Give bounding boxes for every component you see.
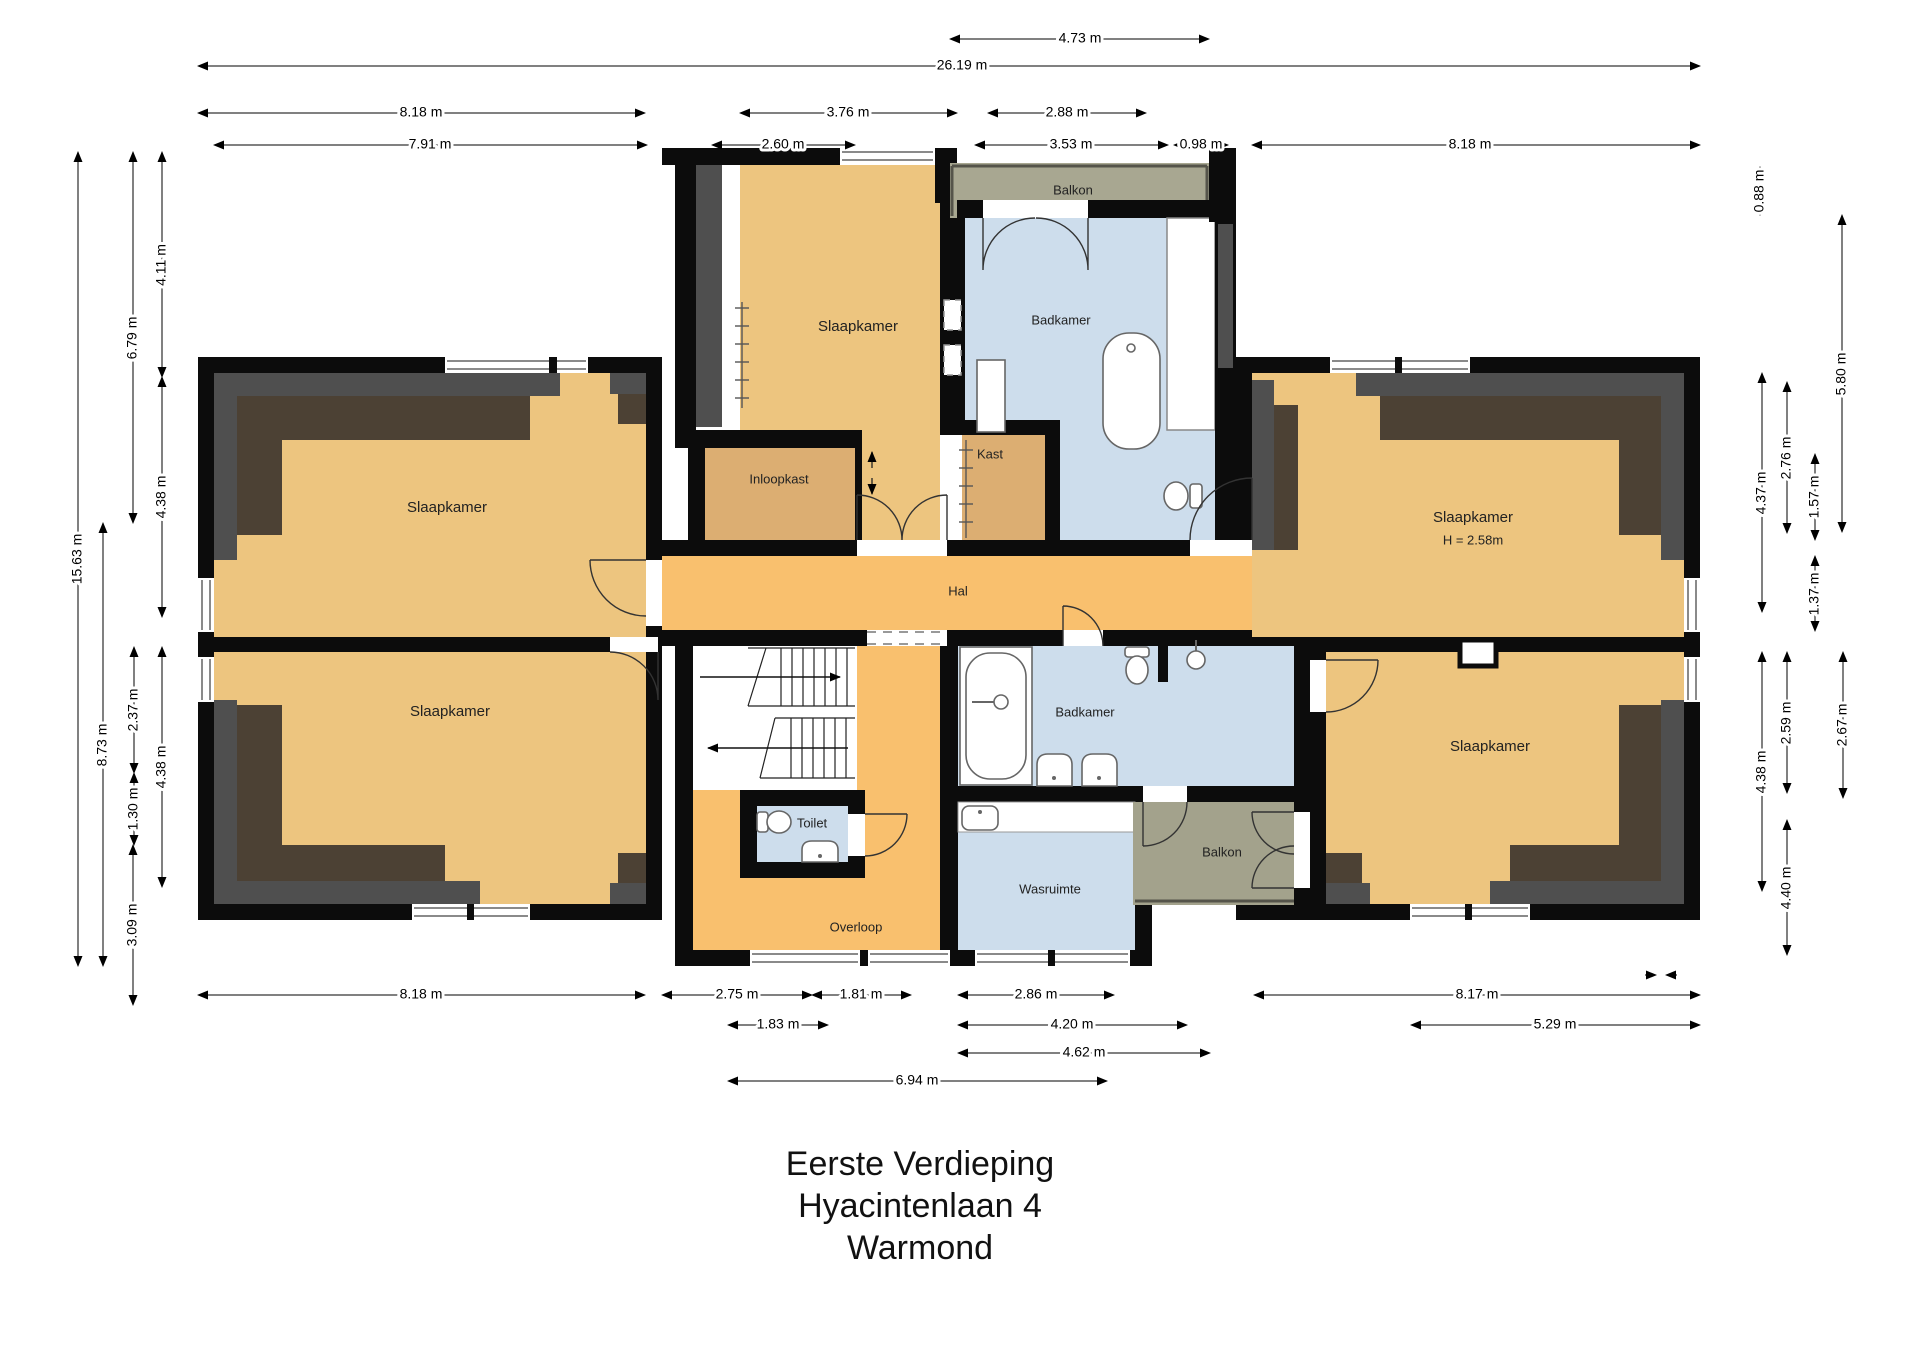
dim-label: 2.75 m bbox=[716, 986, 759, 1002]
dim-label: 0.98 m bbox=[1180, 136, 1223, 152]
dim-label: 2.88 m bbox=[1046, 104, 1089, 120]
dim-label: 7.91 m bbox=[409, 136, 452, 152]
dim-label: 8.18 m bbox=[400, 986, 443, 1002]
room-label-overloop: Overloop bbox=[830, 919, 883, 934]
dim-label: 8.18 m bbox=[400, 104, 443, 120]
plan-title: Eerste Verdieping Hyacintenlaan 4 Warmon… bbox=[786, 1145, 1054, 1267]
window bbox=[198, 657, 214, 702]
dim-label: 5.29 m bbox=[1534, 1016, 1577, 1032]
floor-plan: 4.73 m 26.19 m 8.18 m 3.76 m 2.88 m 7.91… bbox=[0, 0, 1920, 1358]
center-top-section bbox=[662, 148, 1236, 556]
dim-label: 1.30 m bbox=[125, 788, 141, 831]
dim-label: 8.18 m bbox=[1449, 136, 1492, 152]
dim-label: 4.38 m bbox=[1753, 751, 1769, 794]
title-city: Warmond bbox=[847, 1229, 993, 1267]
dim-label: 4.38 m bbox=[153, 476, 169, 519]
room-label-ceiling-height: H = 2.58m bbox=[1443, 532, 1503, 547]
dim-label: 4.20 m bbox=[1051, 1016, 1094, 1032]
room-label-balkon-bottom: Balkon bbox=[1202, 844, 1242, 859]
dim-label: 2.37 m bbox=[125, 689, 141, 732]
window bbox=[198, 578, 214, 632]
sink-icon bbox=[802, 841, 838, 862]
window bbox=[840, 148, 935, 165]
dim-label: 6.79 m bbox=[124, 317, 140, 360]
bathtub-freestanding-icon bbox=[1103, 333, 1160, 449]
dim-label: 1.81 m bbox=[840, 986, 883, 1002]
title-street: Hyacintenlaan 4 bbox=[798, 1187, 1042, 1225]
toilet-icon bbox=[1125, 647, 1149, 684]
dim-label: 4.62 m bbox=[1063, 1044, 1106, 1060]
window bbox=[1330, 357, 1470, 373]
room-label-slaapkamer-mid-top: Slaapkamer bbox=[818, 318, 898, 335]
dim-label: 4.38 m bbox=[153, 746, 169, 789]
room-label-slaapkamer-left-top: Slaapkamer bbox=[407, 499, 487, 516]
dim-label: 8.73 m bbox=[94, 724, 110, 767]
dim-label: 4.73 m bbox=[1059, 30, 1102, 46]
toilet-icon bbox=[1164, 482, 1202, 510]
window bbox=[412, 904, 530, 920]
window bbox=[445, 357, 588, 373]
sink-icon bbox=[1037, 754, 1072, 786]
sink-icon bbox=[962, 806, 998, 830]
dim-label: 2.67 m bbox=[1834, 704, 1850, 747]
dim-label: 4.40 m bbox=[1778, 867, 1794, 910]
dim-label: 2.86 m bbox=[1015, 986, 1058, 1002]
wall-stub bbox=[1158, 646, 1168, 682]
window bbox=[1410, 904, 1530, 920]
room-label-badkamer-bottom: Badkamer bbox=[1055, 704, 1115, 719]
bathtub-builtin-icon bbox=[960, 647, 1032, 785]
dim-label: 0.88 m bbox=[1751, 170, 1767, 213]
dim-label: 1.37 m bbox=[1806, 573, 1822, 616]
dim-label: 4.37 m bbox=[1753, 472, 1769, 515]
dim-label: 1.83 m bbox=[757, 1016, 800, 1032]
toilet-icon bbox=[757, 811, 791, 833]
room-kast bbox=[962, 435, 1045, 540]
room-label-inloopkast: Inloopkast bbox=[749, 471, 809, 486]
dim-label: 3.09 m bbox=[124, 904, 140, 947]
dim-label: 5.80 m bbox=[1833, 353, 1849, 396]
dim-label: 8.17 m bbox=[1456, 986, 1499, 1002]
window bbox=[750, 950, 860, 966]
window bbox=[1684, 657, 1700, 702]
window bbox=[868, 950, 950, 966]
title-level: Eerste Verdieping bbox=[786, 1145, 1054, 1183]
window bbox=[975, 950, 1130, 966]
dim-label: 3.76 m bbox=[827, 104, 870, 120]
room-label-kast: Kast bbox=[977, 446, 1003, 461]
vanity-icon bbox=[977, 360, 1005, 432]
dim-label: 2.60 m bbox=[762, 136, 805, 152]
dim-label: 1.57 m bbox=[1806, 476, 1822, 519]
dim-label: 2.59 m bbox=[1778, 702, 1794, 745]
dim-label: 6.94 m bbox=[896, 1072, 939, 1088]
window bbox=[1684, 578, 1700, 632]
dim-label: 4.11 m bbox=[153, 244, 169, 286]
left-wing bbox=[198, 357, 662, 920]
shower-area bbox=[1167, 218, 1215, 430]
room-label-toilet: Toilet bbox=[797, 815, 828, 830]
room-label-slaapkamer-right-top: Slaapkamer bbox=[1433, 509, 1513, 526]
staircase bbox=[693, 646, 857, 790]
dim-label: 26.19 m bbox=[937, 57, 988, 73]
room-label-slaapkamer-left-bottom: Slaapkamer bbox=[410, 703, 490, 720]
room-label-balkon-top: Balkon bbox=[1053, 182, 1093, 197]
dim-label: 15.63 m bbox=[69, 534, 85, 585]
dim-label: 2.76 m bbox=[1778, 437, 1794, 480]
room-inloopkast bbox=[705, 448, 855, 540]
sink-icon bbox=[1082, 754, 1117, 786]
room-label-slaapkamer-right-bottom: Slaapkamer bbox=[1450, 738, 1530, 755]
room-label-hal: Hal bbox=[948, 583, 968, 598]
dim-label: 3.53 m bbox=[1050, 136, 1093, 152]
floorplan-page: 4.73 m 26.19 m 8.18 m 3.76 m 2.88 m 7.91… bbox=[0, 0, 1920, 1358]
room-label-badkamer-top: Badkamer bbox=[1031, 312, 1091, 327]
room-label-wasruimte: Wasruimte bbox=[1019, 881, 1081, 896]
